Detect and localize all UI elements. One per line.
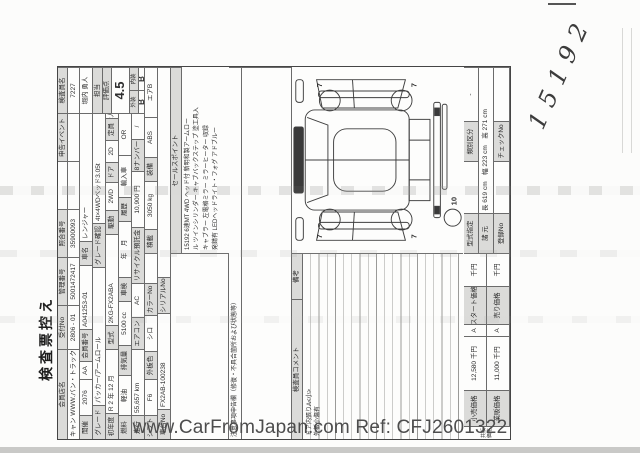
capacity-value: 2人 xyxy=(106,113,119,118)
number8-value: / xyxy=(132,113,145,139)
wheel-tread-mark: 7 xyxy=(315,234,324,238)
price-block: 共販価格 小売価格 業販価格 12,580 千円 11,000 千円 A A xyxy=(464,253,510,439)
scan-edge-line xyxy=(631,28,632,153)
check-no-label: チェックNo xyxy=(494,121,510,161)
event-label: 申告イベント xyxy=(58,113,68,161)
wheel-tread-mark: 7 xyxy=(410,234,419,238)
type-designation-label: 型式指定 xyxy=(464,213,479,253)
history-sub: OR xyxy=(119,113,132,155)
scan-noise-streak xyxy=(0,316,640,323)
blank-cell xyxy=(68,161,80,209)
grade-check-value: 4t×4WDベッド3.05t xyxy=(93,113,106,223)
chassis-no-value: FX2AB-100238 xyxy=(158,313,171,409)
in-charge-label: 担当 xyxy=(93,67,103,113)
drive-label: 駆動 xyxy=(106,210,119,234)
inspector-label: 検査員名 xyxy=(58,67,68,113)
wholesale-price-mark: A xyxy=(487,324,510,336)
model-code-label: 型式 xyxy=(106,325,119,349)
grade-value: パッカー/アームロール xyxy=(93,267,106,405)
dimensions-label: 諸 元 xyxy=(479,213,494,253)
first-year-label: 初年度 xyxy=(106,413,119,439)
model-code-value: 2KG-FX2ABA xyxy=(106,234,119,326)
displacement-value: 5100 cc xyxy=(119,301,132,345)
history-label: 履歴 xyxy=(119,197,132,221)
specs-block: 型式指定 類別区分 - 諸 元 長 619 cm 幅 223 cm 高 271 … xyxy=(464,67,510,253)
sell-price-unit: 千円 xyxy=(487,253,510,286)
scan-edge-mark xyxy=(548,3,576,5)
member-store-label: 会員店名 xyxy=(58,349,68,439)
aircon-value: AC xyxy=(132,283,145,317)
mileage-value: 55,657 km xyxy=(132,349,145,415)
scan-noise-streak xyxy=(0,186,640,195)
remarks-header: 備考 xyxy=(292,253,303,299)
site-watermark: www.CarFromJapan.com Ref: CFJ2601322 xyxy=(133,417,508,439)
first-year-value: R 2 年 12 月 xyxy=(106,349,119,413)
inspector-id: 7227 xyxy=(68,67,80,113)
reception-no-value: 2806 - 01 xyxy=(68,305,80,349)
retail-price-value: 12,580 千円 xyxy=(464,336,487,390)
scanned-auction-sheet: 検査票控え 会員店名 受付No 管理番号 照合番号 申告イベント キャン WWW… xyxy=(0,0,640,453)
car-name-value: レンジャー xyxy=(80,113,93,241)
grade-check-label: グレード確認 xyxy=(93,223,106,267)
serial-no-label: シリアルNo xyxy=(158,277,171,313)
wheel-tread-mark: 7 xyxy=(410,83,419,87)
scan-noise-streak xyxy=(0,250,640,257)
serial-no-value xyxy=(158,67,171,277)
equipment-item-abs: ABS xyxy=(145,117,158,157)
check-no-value xyxy=(494,67,510,121)
reception-no-label: 受付No xyxy=(58,305,68,349)
comment-ruled-area: ドア内張りA<小> 外板小傷有 xyxy=(303,253,463,439)
score-value: 4.5 xyxy=(112,67,130,113)
recycle-fee-value: 10,900 円 xyxy=(132,171,145,227)
inspection-value: 年 月 xyxy=(119,221,132,277)
fuel-label: 燃料 xyxy=(119,415,132,439)
inspector-column: 検査員名 7227 堀内 勇人 xyxy=(58,67,93,113)
grade-label: グレード xyxy=(93,405,106,439)
class-division-value: - xyxy=(464,67,479,121)
inspector-name: 堀内 勇人 xyxy=(80,67,93,113)
sales-point-label: セールスポイント xyxy=(171,67,182,253)
handwritten-lot-number: 15192 xyxy=(523,11,598,133)
score-label: 評価点 xyxy=(103,67,112,113)
color-label: 外板色 xyxy=(145,351,158,379)
capacity-label: 定員 xyxy=(106,118,119,140)
registration-no-label: 登録No xyxy=(494,213,510,253)
sales-point-line: ル ツインシリンダー キャブバックステップ 塗工具入 xyxy=(193,70,202,250)
page-title: 検査票控え xyxy=(36,296,56,381)
control-no-value: 5001472417 xyxy=(68,257,80,305)
number8-label: 8ナンバー xyxy=(132,139,145,171)
class-division-label: 類別区分 xyxy=(464,121,479,161)
event-value xyxy=(68,113,80,161)
blank-cell xyxy=(171,253,229,439)
shift-value: F6 xyxy=(145,379,158,415)
fuel-value: 軽油 xyxy=(119,375,132,415)
comment-section: 検査員コメント 備考 ドア内張りA<小> 外板小傷有 xyxy=(292,253,464,439)
doors-label: ドア xyxy=(106,162,119,182)
color-no-label: カラーNo xyxy=(145,283,158,315)
score-column: 担当 評価点 4.5 外装 B 内装 B xyxy=(93,67,145,113)
wholesale-price-value: 11,000 千円 xyxy=(487,336,510,390)
start-price-unit: 千円 xyxy=(464,253,487,286)
interior-label: 内装 xyxy=(130,67,139,90)
auction-value: 2076 xyxy=(80,379,93,415)
inspection-label: 車検 xyxy=(119,277,132,301)
sales-point-line: 発錆有 LEDヘッドライト・フォグ アドブルー xyxy=(212,70,221,250)
sales-point-line: 15192 6速MT 4WD ヘッド付 新明和製アームロー xyxy=(184,70,193,250)
exterior-label: 外装 xyxy=(130,90,139,113)
equipment-label: 装備 xyxy=(145,157,158,181)
displacement-label: 排気量 xyxy=(119,345,132,375)
sales-point-line: キャブラー 左電格ミラー ミラーヒーター 収録 xyxy=(203,70,212,250)
control-no-label: 管理番号 xyxy=(58,257,68,305)
vehicle-diagram: 7 7 7 7 10 xyxy=(292,67,464,253)
blank-cell xyxy=(58,161,68,209)
member-no-label: 会員番号 xyxy=(80,329,93,361)
retail-price-mark: A xyxy=(464,324,487,336)
scan-edge-line xyxy=(622,28,623,153)
member-store-value: キャン WWW.バン・トラック.jp xyxy=(68,349,80,439)
wheel-tread-mark: 7 xyxy=(315,83,324,87)
sales-point-block: セールスポイント 15192 6速MT 4WD ヘッド付 新明和製アームロー ル… xyxy=(171,67,229,253)
doors-value: 2D xyxy=(106,140,119,162)
auction-label: 開催 xyxy=(80,415,93,439)
spare-tread-mark: 10 xyxy=(449,197,458,205)
equipment-item-airbag: エアB xyxy=(145,67,158,117)
scan-edge-strip xyxy=(0,447,640,453)
auction-sub: AA xyxy=(80,361,93,379)
color-no-value xyxy=(145,253,158,283)
rotated-sheet: 検査票控え 会員店名 受付No 管理番号 照合番号 申告イベント キャン WWW… xyxy=(0,0,640,453)
